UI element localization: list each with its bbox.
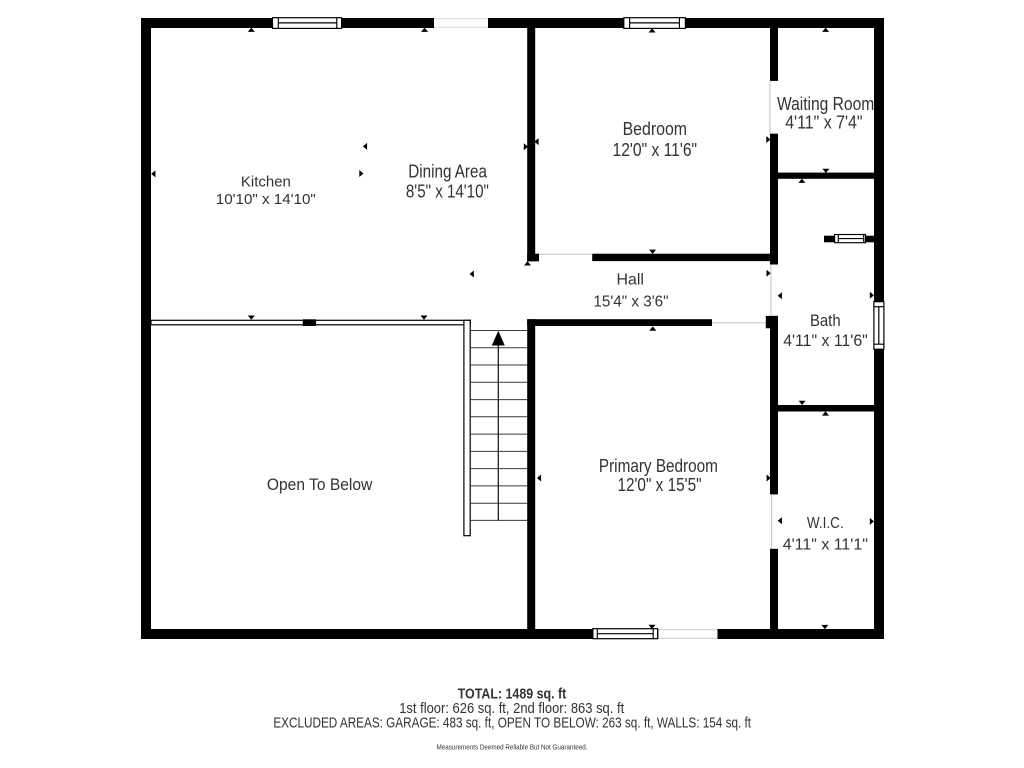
- svg-text:Hall: Hall: [617, 271, 644, 288]
- svg-text:4'11" x 7'4": 4'11" x 7'4": [785, 113, 862, 133]
- svg-text:Primary Bedroom: Primary Bedroom: [599, 456, 718, 476]
- svg-text:4'11" x 11'1": 4'11" x 11'1": [783, 536, 868, 553]
- svg-text:EXCLUDED AREAS: GARAGE: 483 sq: EXCLUDED AREAS: GARAGE: 483 sq. ft, OPEN…: [273, 716, 751, 732]
- svg-text:15'4" x 3'6": 15'4" x 3'6": [593, 293, 668, 310]
- svg-text:Measurements Deemed Reliable B: Measurements Deemed Reliable But Not Gua…: [437, 742, 588, 751]
- svg-text:Kitchen: Kitchen: [241, 174, 291, 191]
- svg-text:Dining Area: Dining Area: [408, 162, 487, 182]
- svg-text:W.I.C.: W.I.C.: [807, 515, 844, 532]
- svg-text:TOTAL: 1489 sq. ft: TOTAL: 1489 sq. ft: [458, 686, 567, 702]
- svg-text:4'11" x 11'6": 4'11" x 11'6": [783, 331, 868, 350]
- svg-text:Open To Below: Open To Below: [267, 476, 372, 494]
- svg-text:12'0" x 11'6": 12'0" x 11'6": [613, 140, 698, 160]
- svg-text:Bedroom: Bedroom: [623, 119, 687, 139]
- svg-text:Waiting Room: Waiting Room: [777, 94, 874, 114]
- svg-text:Bath: Bath: [810, 311, 841, 330]
- svg-text:12'0" x 15'5": 12'0" x 15'5": [617, 475, 701, 495]
- svg-text:8'5" x 14'10": 8'5" x 14'10": [406, 182, 489, 202]
- svg-text:10'10" x 14'10": 10'10" x 14'10": [216, 191, 316, 208]
